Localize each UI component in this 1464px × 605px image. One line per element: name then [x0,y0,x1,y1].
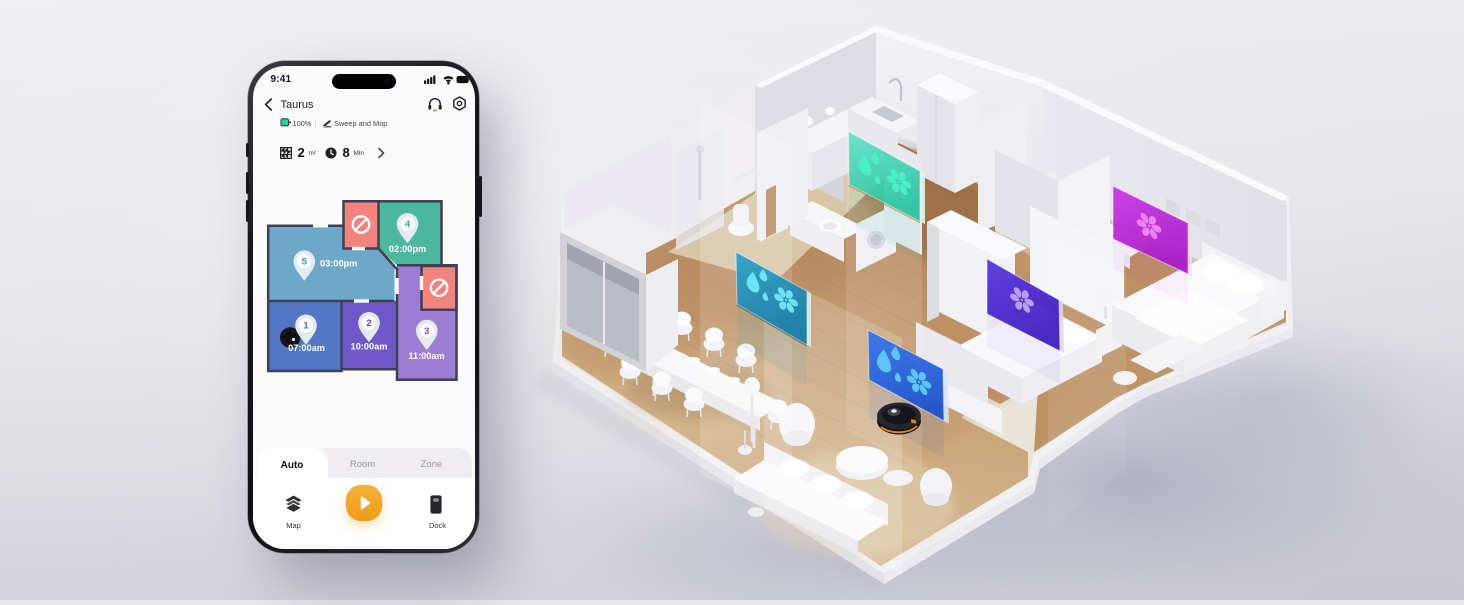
svg-text:4: 4 [404,219,410,230]
svg-text:3: 3 [424,325,429,336]
svg-text:03:00pm: 03:00pm [320,258,357,268]
svg-text:02:00pm: 02:00pm [388,244,425,254]
svg-text:11:00am: 11:00am [408,351,444,361]
svg-text:1: 1 [303,320,309,331]
svg-text:5: 5 [301,256,307,267]
svg-text:07:00am: 07:00am [288,343,325,353]
svg-text:2: 2 [366,318,371,329]
svg-text:10:00am: 10:00am [350,341,387,351]
